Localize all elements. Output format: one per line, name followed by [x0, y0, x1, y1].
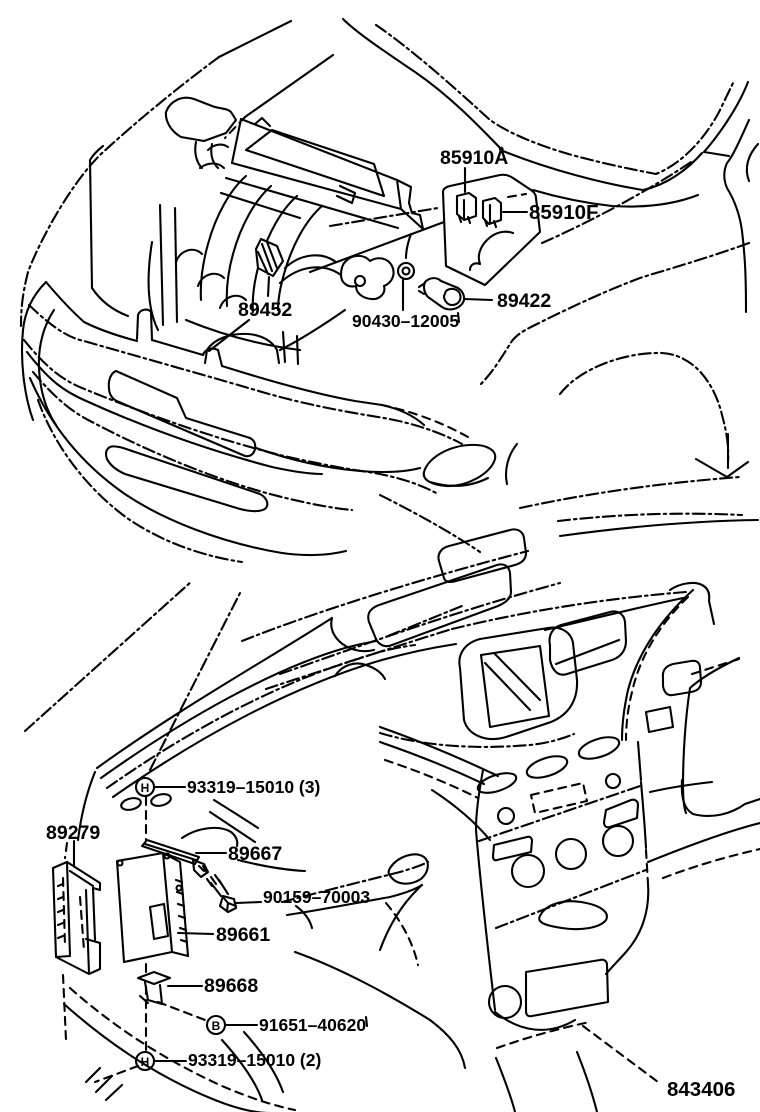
svg-text:90159–70003: 90159–70003	[263, 887, 370, 907]
svg-text:89667: 89667	[228, 843, 282, 865]
svg-text:89422: 89422	[497, 290, 551, 312]
svg-text:89452: 89452	[238, 299, 292, 321]
svg-text:843406: 843406	[667, 1078, 735, 1101]
svg-text:89668: 89668	[204, 975, 258, 997]
svg-text:91651–40620: 91651–40620	[259, 1015, 366, 1035]
svg-text:90430–12005: 90430–12005	[352, 311, 459, 331]
svg-text:89661: 89661	[216, 924, 270, 946]
svg-text:H: H	[141, 781, 150, 795]
svg-text:B: B	[212, 1019, 221, 1033]
svg-text:89279: 89279	[46, 822, 100, 844]
svg-text:85910F: 85910F	[529, 201, 599, 224]
svg-text:93319–15010 (3): 93319–15010 (3)	[187, 777, 320, 797]
svg-text:93319–15010 (2): 93319–15010 (2)	[188, 1050, 321, 1070]
svg-text:85910Å: 85910Å	[440, 145, 508, 169]
svg-text:H: H	[141, 1055, 150, 1069]
